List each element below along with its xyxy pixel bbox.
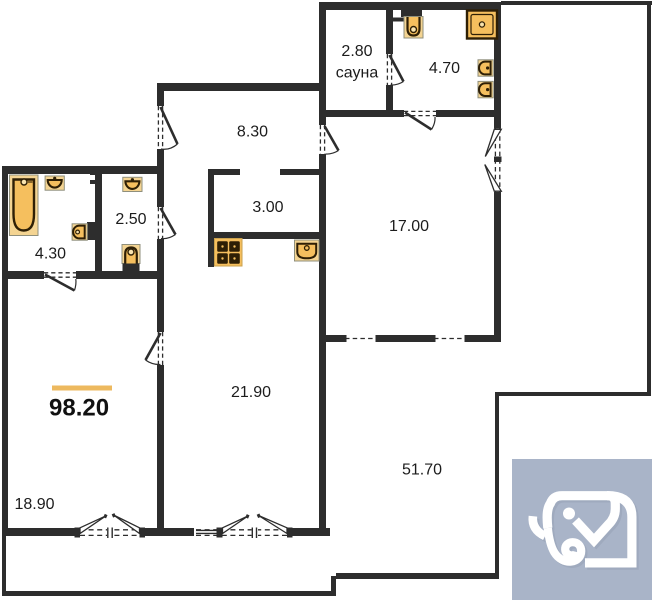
svg-text:3.00: 3.00 [252,199,283,216]
svg-text:4.70: 4.70 [429,60,460,77]
svg-text:8.30: 8.30 [237,124,268,141]
svg-text:17.00: 17.00 [389,218,429,235]
svg-text:4.30: 4.30 [35,246,66,263]
svg-text:сауна: сауна [336,65,379,82]
svg-text:18.90: 18.90 [14,496,54,513]
svg-text:98.20: 98.20 [49,395,109,422]
svg-text:2.80: 2.80 [341,43,372,60]
svg-text:21.90: 21.90 [231,384,271,401]
svg-text:2.50: 2.50 [115,211,146,228]
svg-text:51.70: 51.70 [402,462,442,479]
